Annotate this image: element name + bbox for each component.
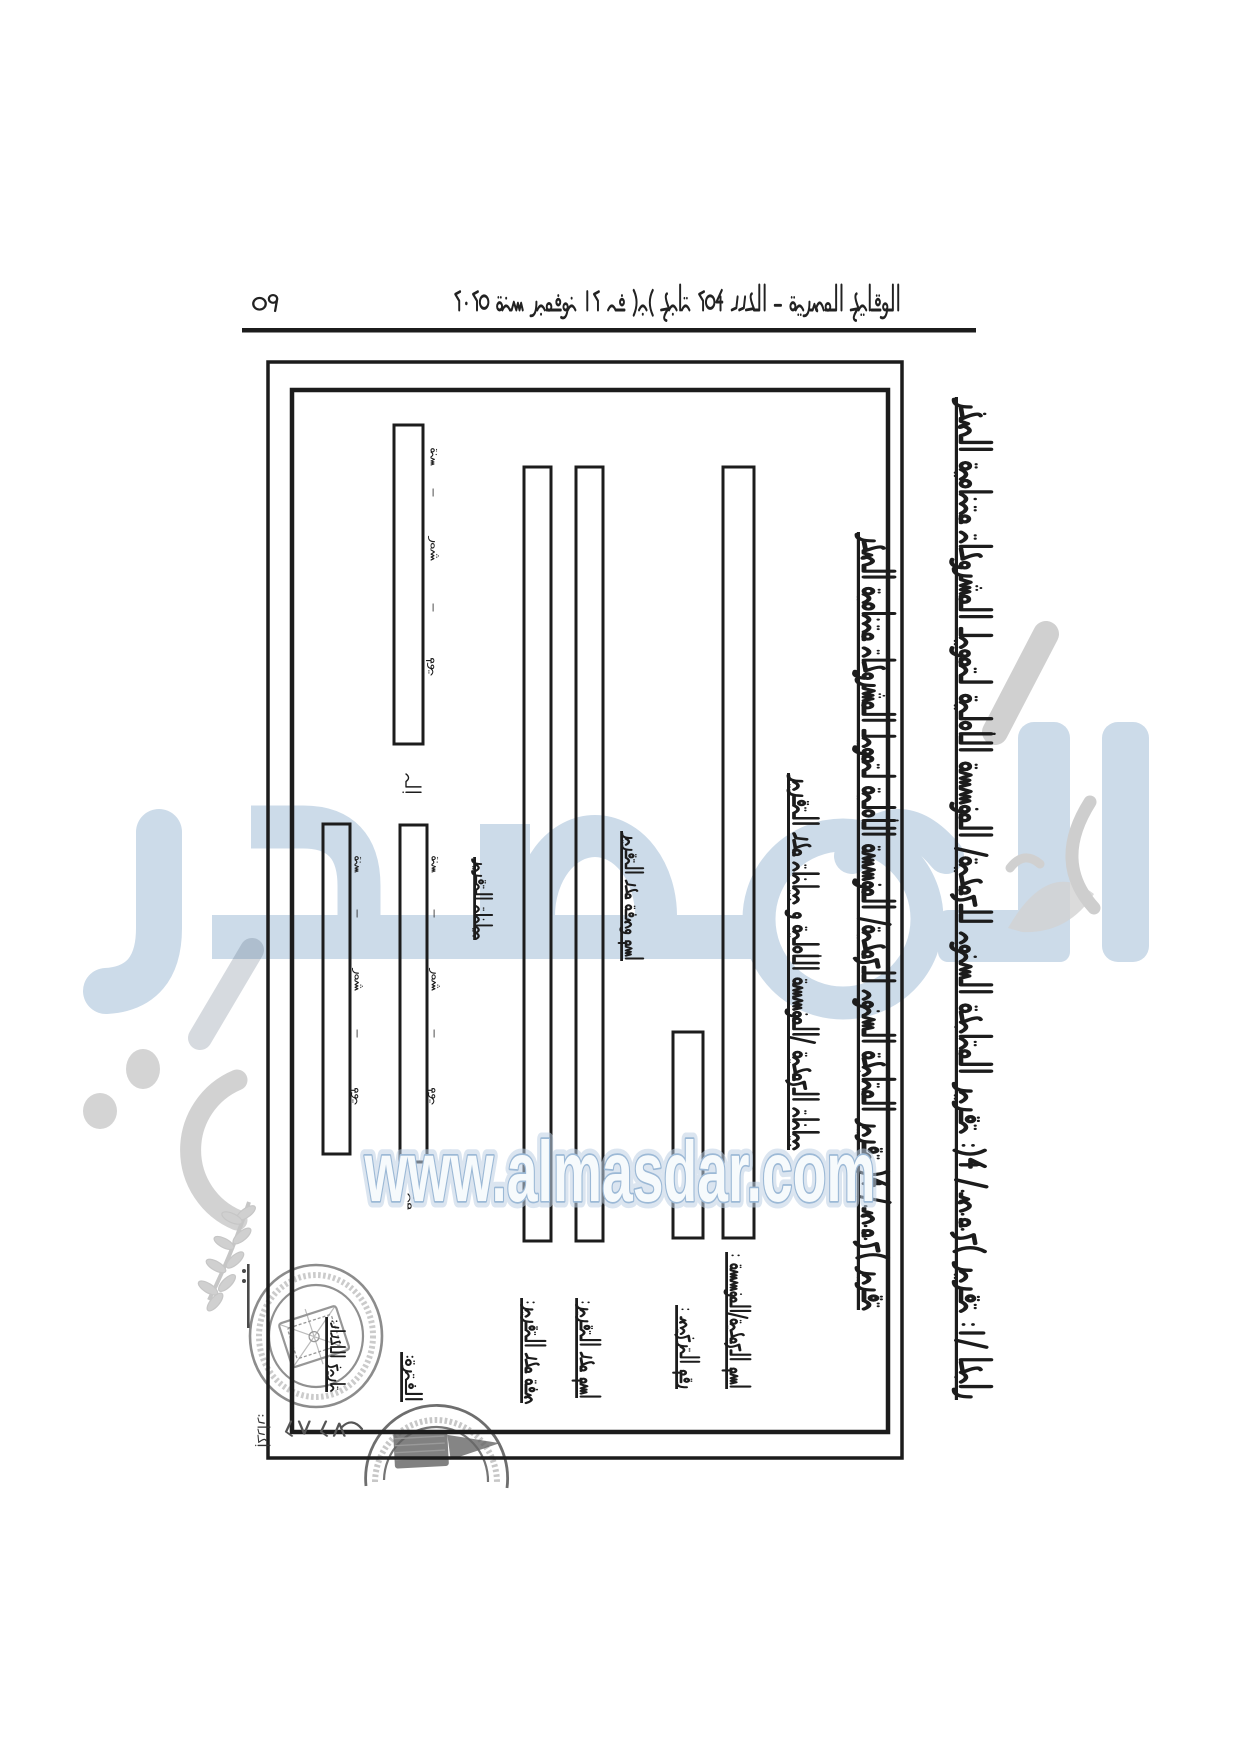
svg-text:www.almasdar.com: www.almasdar.com bbox=[364, 1125, 876, 1220]
